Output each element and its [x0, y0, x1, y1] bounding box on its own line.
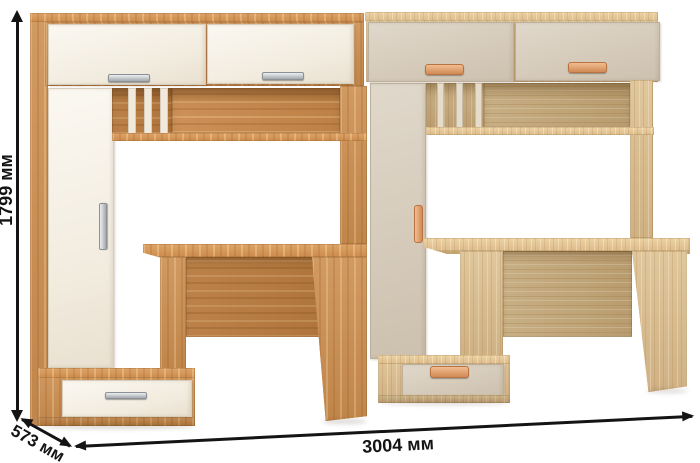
left-unit-drawer-handle [105, 392, 147, 399]
right-unit-desk-back-panel [503, 251, 632, 337]
left-unit-desk-back-panel [186, 257, 334, 337]
left-unit-pigeonhole-divider [144, 88, 152, 136]
left-unit-drawer-box-top [38, 368, 195, 378]
width-dimension-label: 3004 мм [338, 432, 459, 456]
floor-shadow [40, 424, 195, 429]
left-unit-pigeonhole-divider [160, 88, 168, 136]
right-unit-pigeonhole-divider [437, 83, 444, 130]
floor-shadow [646, 389, 688, 393]
right-unit-wardrobe-handle [414, 205, 423, 243]
left-unit-hutch-shelf [112, 133, 367, 141]
floor-shadow [322, 419, 367, 424]
right-unit-drawer-handle [430, 366, 469, 378]
width-dimension-arrow-right [682, 411, 694, 422]
height-dimension-arrow-top [11, 10, 23, 22]
right-unit-desk-pedestal [460, 251, 503, 356]
right-unit-hutch-right-upright [630, 80, 653, 238]
height-dimension-line [16, 20, 19, 412]
right-unit-top-door-1-handle [425, 64, 464, 75]
left-unit-pigeonhole-divider [128, 88, 136, 136]
left-unit-desk-right-leg [312, 257, 367, 421]
left-unit-desk-pedestal [160, 257, 186, 369]
right-unit-desk-right-leg [632, 251, 687, 392]
right-unit-pigeonhole-divider [456, 83, 463, 130]
right-unit-pigeonhole-divider [475, 83, 482, 130]
left-unit-top-door-2-handle [262, 72, 304, 80]
right-unit-open-niche-back [484, 83, 630, 127]
left-unit-hutch-right-upright [340, 86, 367, 244]
height-dimension-label: 1799 мм [0, 142, 16, 238]
right-unit-top-door-2-handle [568, 62, 607, 73]
right-unit-hutch-shelf [426, 127, 654, 135]
left-unit-top-door-1-handle [108, 74, 150, 82]
floor-shadow [380, 401, 510, 405]
left-unit-top-cornice [30, 13, 364, 22]
furniture-product-render: 1799 мм 573 мм 3004 мм [0, 0, 700, 463]
left-unit-open-niche-back [172, 88, 340, 133]
width-dimension-arrow-left [74, 441, 86, 452]
left-unit-wardrobe-handle [99, 203, 107, 250]
right-unit-drawer-box-top [378, 355, 510, 364]
